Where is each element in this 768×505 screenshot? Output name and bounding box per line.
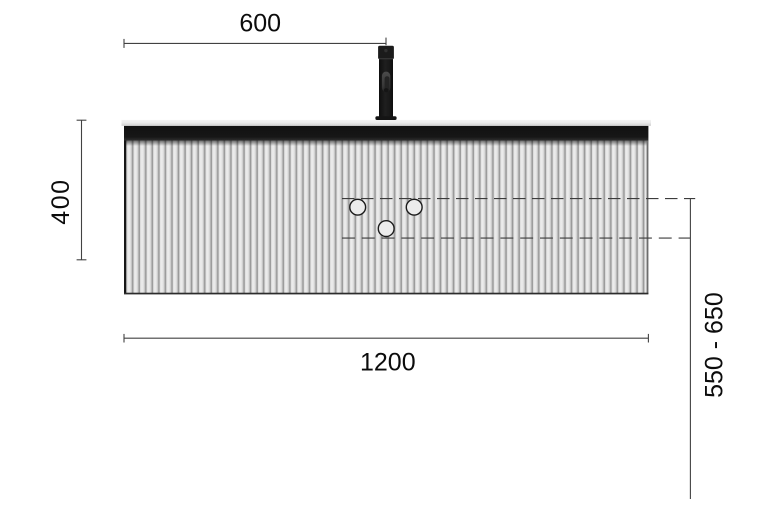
svg-text:400: 400: [47, 178, 75, 224]
svg-text:550 - 650: 550 - 650: [700, 292, 728, 398]
svg-text:600: 600: [239, 10, 281, 38]
svg-text:1200: 1200: [360, 348, 416, 376]
